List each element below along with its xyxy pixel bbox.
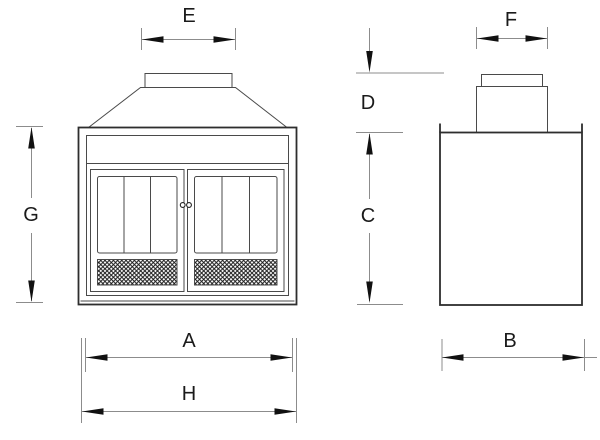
arrowhead-down <box>28 281 35 303</box>
fireplace-dimension-diagram: E F G D C A H B <box>0 0 600 440</box>
side-body-box <box>440 133 582 306</box>
side-view <box>440 75 582 306</box>
arrowhead-right <box>271 354 293 361</box>
right-door-mesh-vent <box>195 260 278 286</box>
front-hood <box>89 88 288 128</box>
arrowhead-down <box>366 51 373 73</box>
arrowhead-right <box>563 354 585 361</box>
front-flue-collar <box>145 74 232 88</box>
arrowhead-right <box>526 35 548 42</box>
left-door-mesh-vent <box>98 260 178 286</box>
arrowhead-down <box>366 282 373 304</box>
side-flue-collar <box>482 75 543 87</box>
left-door-handle <box>180 203 185 208</box>
front-view <box>79 74 297 305</box>
dim-label-G: G <box>23 205 39 225</box>
right-door-handle <box>187 203 192 208</box>
dim-label-C: C <box>361 206 375 226</box>
dim-label-F: F <box>505 10 517 30</box>
side-chimney-base <box>477 87 548 133</box>
arrowhead-right <box>214 36 236 43</box>
arrowhead-left <box>477 35 499 42</box>
arrowhead-left <box>142 36 164 43</box>
arrowhead-left <box>82 408 104 415</box>
arrowhead-left <box>442 354 464 361</box>
dim-label-E: E <box>182 6 195 26</box>
dim-label-D: D <box>361 93 375 113</box>
dim-label-H: H <box>182 384 196 404</box>
drawing <box>0 0 600 440</box>
arrowhead-up <box>366 133 373 155</box>
dim-E <box>142 28 236 50</box>
arrowhead-up <box>28 127 35 149</box>
dim-D <box>356 28 444 73</box>
dim-label-B: B <box>503 331 516 351</box>
dim-label-A: A <box>182 331 195 351</box>
arrowhead-left <box>86 354 108 361</box>
dim-B <box>442 339 597 371</box>
arrowhead-right <box>275 408 297 415</box>
